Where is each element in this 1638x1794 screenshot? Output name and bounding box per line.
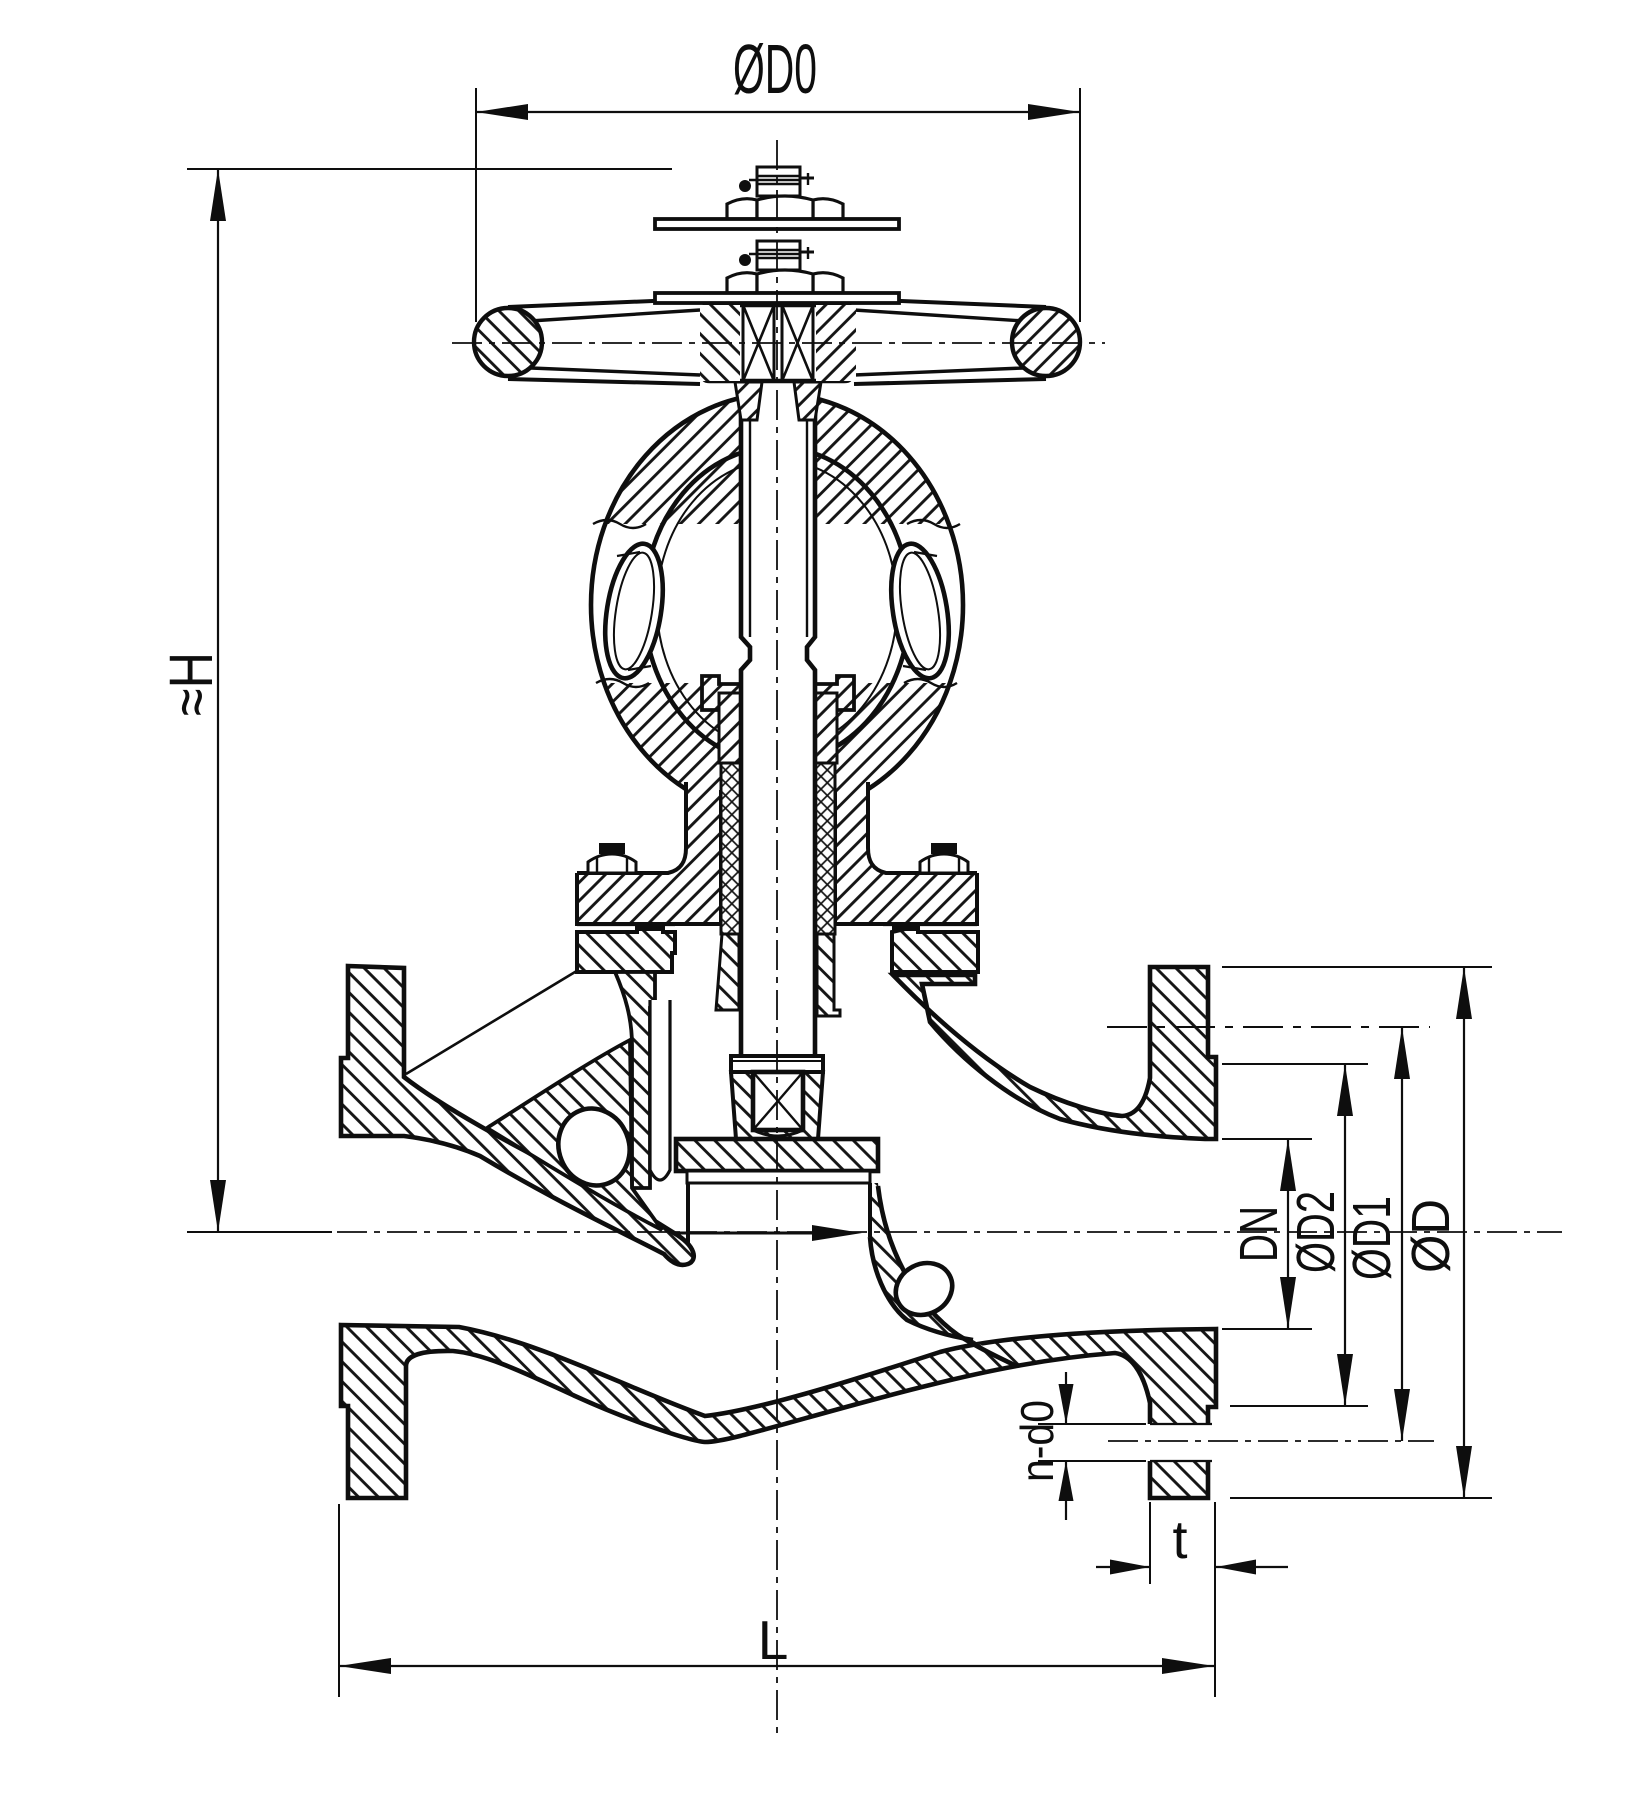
- svg-text:ØD0: ØD0: [733, 30, 817, 108]
- svg-text:DN: DN: [1229, 1206, 1289, 1262]
- svg-text:≈H: ≈H: [157, 652, 225, 716]
- svg-text:ØD1: ØD1: [1342, 1196, 1402, 1280]
- svg-text:L: L: [758, 1609, 789, 1671]
- svg-text:n-d0: n-d0: [1011, 1400, 1063, 1482]
- svg-text:ØD: ØD: [1401, 1199, 1461, 1273]
- svg-text:t: t: [1172, 1510, 1187, 1570]
